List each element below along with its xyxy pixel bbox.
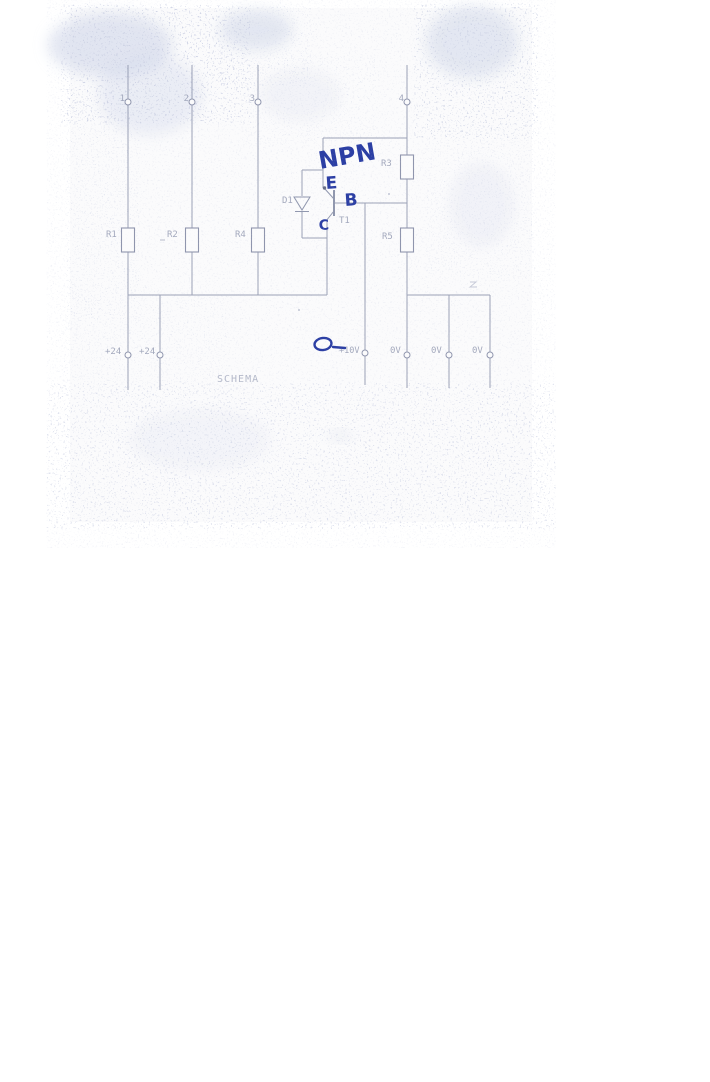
scanned-schematic: 1 2 3 4 R1 R2 R4 R3 R5 D1 T1 +24 +24 +10… (0, 0, 710, 1082)
scan-noise-overlay (70, 8, 532, 522)
scanned-document-page: 1 2 3 4 R1 R2 R4 R3 R5 D1 T1 +24 +24 +10… (0, 0, 710, 1082)
